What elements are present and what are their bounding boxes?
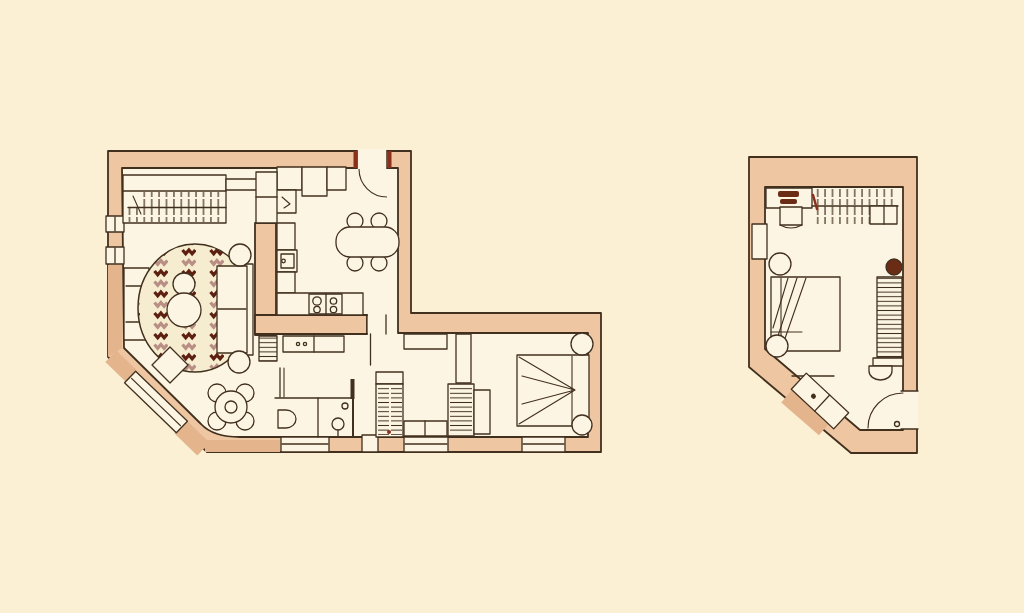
hob-counter	[277, 293, 363, 315]
desk-item-dark-1	[778, 191, 799, 197]
sofa	[217, 264, 253, 355]
annex-nightstand-bottom	[766, 335, 788, 357]
desk-item-dark-2	[780, 199, 797, 204]
console-sideboard	[283, 336, 344, 352]
wall-shelf	[404, 334, 447, 349]
living-radiator	[259, 336, 277, 361]
desk-chair	[780, 207, 802, 228]
cabinets-left-strip	[256, 172, 277, 223]
floor-plan-sheet	[0, 0, 1024, 613]
dark-stove-circle	[886, 259, 902, 275]
wardrobe-side-panel	[474, 390, 490, 434]
left-wall-window-2	[106, 247, 124, 264]
wardrobe-knob	[387, 430, 391, 434]
wall-shelf-right	[226, 179, 258, 190]
small-round-table-with-chairs	[208, 384, 254, 430]
wall-shade-left	[108, 265, 122, 357]
door-jamb-mark-right	[388, 151, 392, 168]
left-wall-window-1	[106, 216, 124, 232]
wall-niche-radiator	[752, 224, 767, 259]
bottom-window-2	[404, 437, 448, 452]
wall-stub	[351, 379, 355, 399]
interior-wall-kitchen-hall	[255, 315, 367, 334]
small-washbasin	[869, 366, 892, 380]
tall-cupboard	[456, 334, 471, 383]
bathroom-wall-step	[362, 435, 378, 452]
annex-nightstand-top	[769, 253, 791, 275]
oval-dining-table	[336, 227, 399, 257]
nightstand-bottom	[572, 415, 592, 435]
clothes-rack	[812, 189, 898, 224]
hatched-wardrobe-1	[376, 372, 403, 437]
bottom-window-1	[281, 437, 329, 452]
side-table-bottom	[228, 351, 250, 373]
floor-plan-drawing	[0, 0, 1024, 613]
door-jamb-mark-left	[354, 151, 358, 168]
sink-counter	[277, 223, 297, 293]
desk	[766, 188, 812, 208]
wall-shade-bottom	[205, 440, 280, 452]
hatched-wardrobe-2	[448, 384, 490, 436]
nightstand-top	[571, 333, 593, 355]
entry-door-gap	[357, 149, 387, 169]
tall-radiator-rack	[873, 277, 903, 366]
bottom-window-3	[522, 437, 565, 452]
toilet	[278, 410, 296, 428]
side-table-top	[229, 244, 251, 266]
tall-cabinet-fridge	[302, 167, 327, 196]
door-handle-dot	[895, 422, 900, 427]
